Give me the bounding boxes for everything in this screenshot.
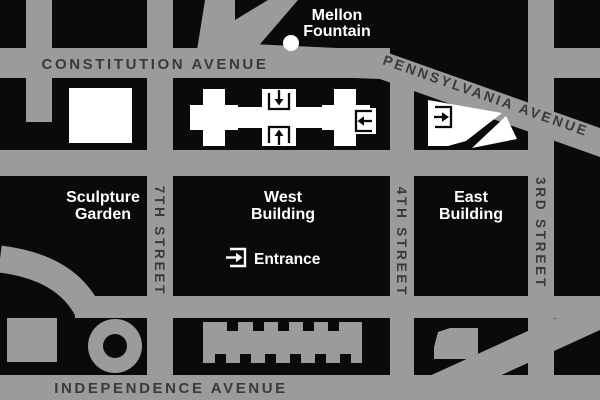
mellon-fountain-label-line2: Fountain [303, 23, 371, 40]
east-building-label-line2: Building [439, 206, 503, 223]
mellon-fountain-dot [283, 35, 299, 51]
third-street-label: 3RD STREET [533, 177, 548, 289]
sculpture-garden-label-line1: Sculpture [66, 189, 140, 206]
constitution-avenue-label: CONSTITUTION AVENUE [42, 56, 269, 73]
west-building-label-line1: West [264, 189, 303, 206]
independence-avenue-label: INDEPENDENCE AVENUE [54, 380, 288, 397]
fourth-street-label: 4TH STREET [394, 187, 409, 298]
hirshhorn-ring-hole [103, 334, 127, 358]
sculpture-garden-pavilion [69, 88, 132, 143]
map-canvas: Entrance CONSTITUTION AVENUE INDEPENDENC… [0, 0, 600, 400]
nga-area-map: Entrance CONSTITUTION AVENUE INDEPENDENC… [0, 0, 600, 400]
museum-footprint-square [7, 318, 57, 362]
east-building-label-line1: East [454, 189, 488, 206]
street-madison-drive [0, 150, 554, 176]
museum-footprint-quad [434, 328, 478, 359]
seventh-street-label: 7TH STREET [152, 186, 167, 297]
west-building-footprint [190, 89, 376, 146]
sculpture-garden-label-line2: Garden [75, 206, 131, 223]
mellon-fountain-label-line1: Mellon [312, 7, 363, 24]
entrance-label: Entrance [254, 251, 321, 268]
west-building-label-line2: Building [251, 206, 315, 223]
